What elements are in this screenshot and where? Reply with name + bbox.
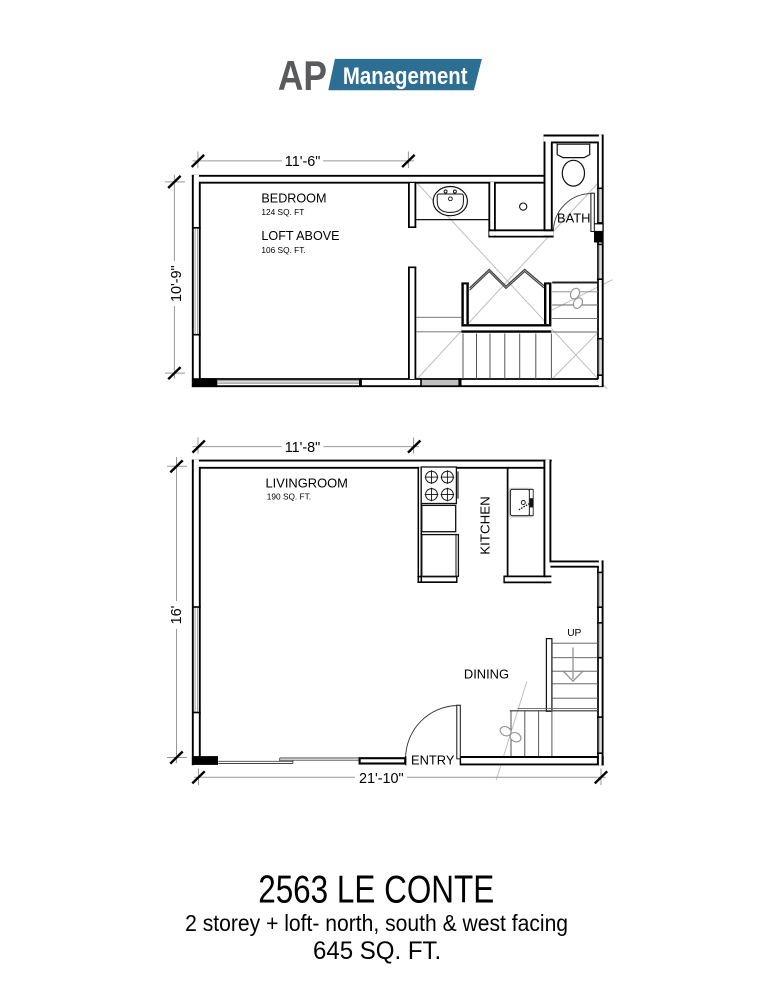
svg-text:21'-10": 21'-10" <box>359 771 404 787</box>
svg-text:190 SQ. FT.: 190 SQ. FT. <box>267 492 311 502</box>
svg-text:2563 LE CONTE: 2563 LE CONTE <box>258 869 494 912</box>
svg-text:UP: UP <box>567 628 581 639</box>
svg-text:BATH: BATH <box>557 211 590 226</box>
svg-text:Management: Management <box>343 62 468 89</box>
svg-text:LOFT ABOVE: LOFT ABOVE <box>261 229 339 243</box>
svg-text:11'-6": 11'-6" <box>285 154 321 170</box>
svg-text:10'-9": 10'-9" <box>169 265 185 302</box>
svg-text:106 SQ. FT.: 106 SQ. FT. <box>261 245 305 255</box>
svg-text:AP: AP <box>278 54 327 100</box>
svg-text:124 SQ. FT: 124 SQ. FT <box>261 207 304 217</box>
svg-text:ENTRY: ENTRY <box>411 753 455 768</box>
svg-text:16': 16' <box>169 605 185 624</box>
svg-text:KITCHEN: KITCHEN <box>477 496 492 554</box>
svg-text:BEDROOM: BEDROOM <box>261 191 326 205</box>
svg-text:11'-8": 11'-8" <box>285 440 321 456</box>
svg-text:2 storey + loft- north, south: 2 storey + loft- north, south & west fac… <box>185 910 568 936</box>
svg-text:645 SQ. FT.: 645 SQ. FT. <box>313 937 441 965</box>
svg-text:LIVINGROOM: LIVINGROOM <box>266 476 348 491</box>
svg-text:DINING: DINING <box>464 666 509 681</box>
